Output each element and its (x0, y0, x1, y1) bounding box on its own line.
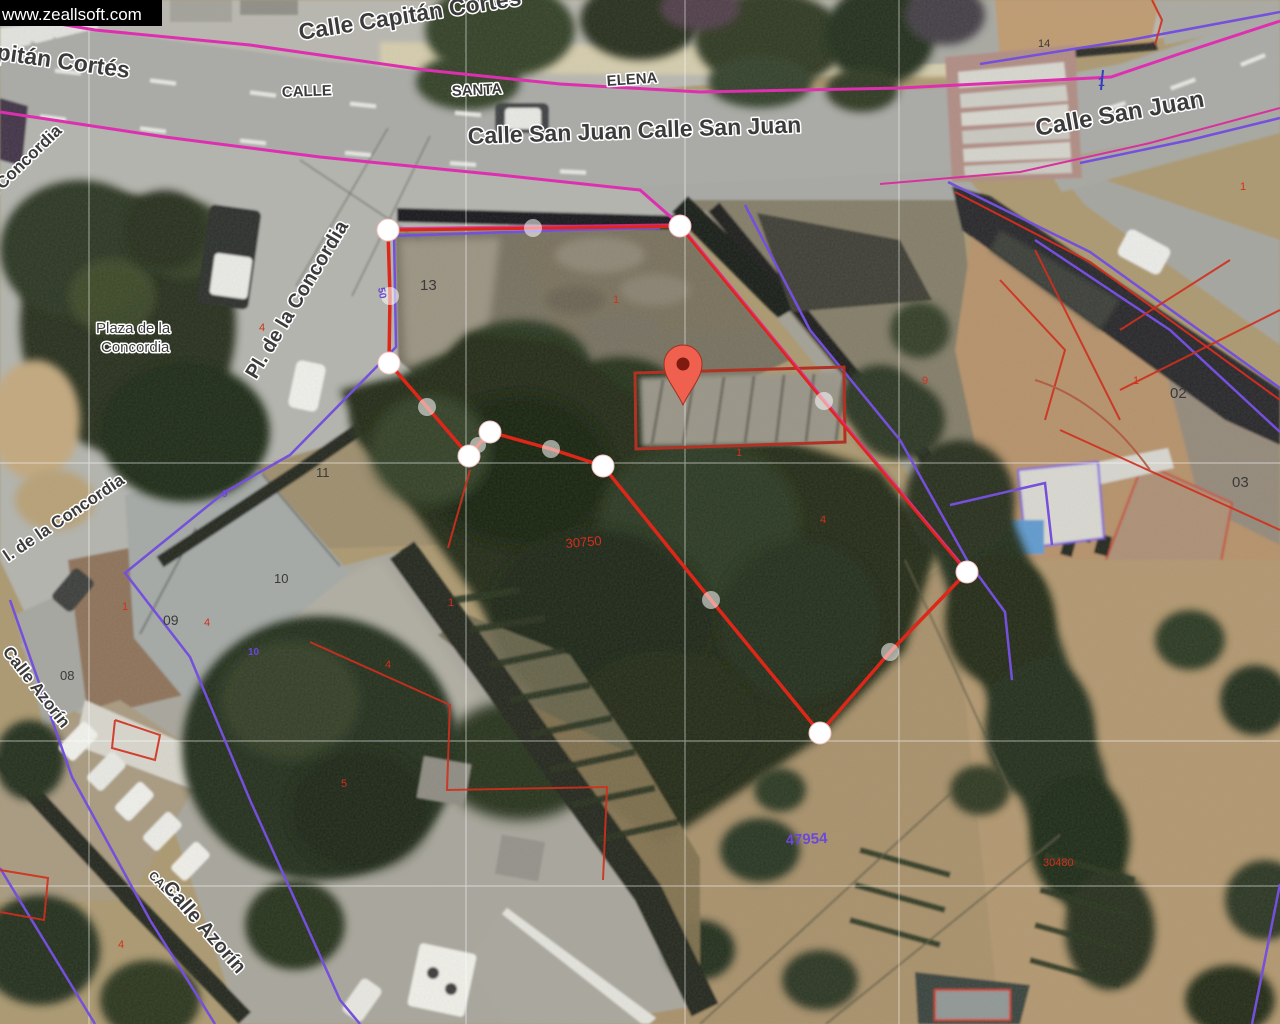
svg-text:47954: 47954 (785, 830, 828, 849)
svg-text:5: 5 (341, 778, 347, 790)
svg-text:02: 02 (1170, 385, 1187, 402)
svg-text:Plaza de la: Plaza de la (96, 320, 171, 337)
svg-text:1: 1 (1133, 375, 1139, 387)
svg-text:www.zeallsoft.com: www.zeallsoft.com (1, 5, 142, 24)
svg-text:1: 1 (613, 294, 619, 306)
svg-text:09: 09 (163, 612, 179, 628)
svg-text:4: 4 (204, 617, 210, 629)
svg-text:SANTA: SANTA (451, 80, 503, 100)
svg-text:4: 4 (118, 939, 124, 951)
svg-text:1: 1 (448, 597, 454, 609)
svg-text:10: 10 (274, 571, 288, 586)
svg-text:ELENA: ELENA (606, 69, 658, 90)
svg-text:Concordia: Concordia (101, 339, 170, 356)
svg-text:14: 14 (1038, 38, 1050, 50)
svg-text:9: 9 (922, 375, 928, 387)
svg-text:CALLE: CALLE (282, 82, 333, 101)
svg-text:1: 1 (122, 601, 128, 613)
svg-text:4: 4 (385, 659, 391, 671)
svg-text:08: 08 (60, 668, 74, 683)
svg-text:10: 10 (248, 647, 260, 658)
svg-text:1: 1 (1240, 181, 1246, 193)
svg-text:11: 11 (316, 465, 330, 480)
svg-text:9: 9 (222, 489, 228, 500)
svg-text:4: 4 (820, 514, 826, 526)
svg-text:30480: 30480 (1043, 857, 1074, 869)
svg-text:13: 13 (420, 277, 437, 294)
svg-text:4: 4 (259, 322, 265, 334)
svg-text:1: 1 (736, 447, 742, 459)
svg-text:30750: 30750 (565, 533, 602, 551)
svg-text:03: 03 (1232, 474, 1249, 491)
